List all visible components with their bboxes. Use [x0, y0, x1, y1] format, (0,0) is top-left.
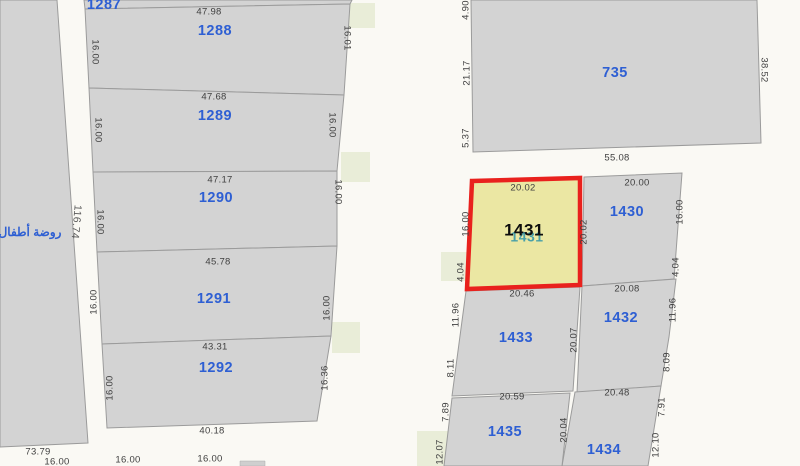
dimension-label: 16.00	[105, 375, 116, 400]
dimension-label: 16.00	[92, 117, 103, 142]
dimension-label: 38.52	[758, 57, 769, 82]
dimension-label: 20.02	[579, 219, 590, 244]
parcel-number-1288: 1288	[198, 23, 232, 39]
parcel-number-1287: 1287	[87, 0, 121, 13]
green-landuse-block	[341, 152, 370, 182]
dimension-label: 16.00	[326, 112, 337, 137]
dimension-label: 11.96	[668, 298, 679, 323]
dimension-label: 20.59	[499, 392, 524, 403]
parcel-number-735: 735	[602, 65, 628, 81]
dimension-label: 20.07	[569, 327, 580, 352]
selected-parcel-label: 1431	[504, 220, 544, 239]
dimension-label: 16.36	[320, 365, 331, 390]
dimension-label: 45.78	[205, 257, 230, 268]
dimension-label: 47.98	[196, 7, 221, 18]
dimension-label: 16.00	[115, 455, 140, 466]
dimension-label: 16.00	[197, 454, 222, 465]
dimension-label: 20.48	[604, 388, 629, 399]
dimension-label: 47.17	[207, 175, 232, 186]
dimension-label: 20.00	[624, 178, 649, 189]
kindergarten-annotation: روضة أطفال	[0, 224, 62, 240]
parcel-number-1434: 1434	[587, 442, 621, 458]
dimension-label: 11.96	[451, 303, 462, 328]
dimension-label: 16.00	[675, 199, 686, 224]
dimension-label: 12.07	[435, 439, 446, 464]
dimension-label: 8.11	[446, 359, 457, 378]
dimension-label: 7.89	[441, 402, 452, 422]
dimension-label: 4.04	[456, 262, 467, 282]
parcel-number-1291: 1291	[197, 291, 231, 307]
dimension-label: 4.90	[461, 0, 472, 20]
dimension-label: 21.17	[462, 60, 473, 85]
dimension-label: 7.91	[657, 397, 668, 417]
dimension-label: 16.00	[89, 39, 100, 64]
parcel-1430[interactable]	[582, 173, 682, 286]
parcel-number-1289: 1289	[198, 108, 232, 124]
parcel-number-1433: 1433	[499, 330, 533, 346]
parcel-number-1430: 1430	[610, 204, 644, 220]
green-landuse-block	[332, 322, 360, 353]
dimension-label: 40.18	[199, 426, 224, 437]
dimension-label: 16.00	[94, 209, 105, 234]
dimension-label: 16.00	[332, 179, 343, 204]
dimension-label: 16.00	[89, 289, 100, 314]
dimension-label: 20.08	[614, 284, 639, 295]
map-canvas[interactable]: 47.9847.6847.1745.7843.3140.1873.7916.00…	[0, 0, 800, 466]
dimension-label: 43.31	[202, 342, 227, 353]
dimension-label: 8.09	[662, 352, 673, 372]
dimension-label: 16.01	[341, 25, 352, 50]
dimension-label: 4.04	[671, 257, 682, 277]
parcel-number-1290: 1290	[199, 190, 233, 206]
dimension-label: 55.08	[604, 153, 629, 164]
dimension-label: 16.00	[322, 295, 333, 320]
dimension-label: 20.02	[510, 183, 535, 194]
parcel-number-1435: 1435	[488, 424, 522, 440]
parcel-number-1432: 1432	[604, 310, 638, 326]
parcel-number-1292: 1292	[199, 360, 233, 376]
dimension-label: 16.00	[44, 457, 69, 466]
dimension-label: 20.04	[559, 417, 570, 442]
parcel-fragment	[240, 461, 265, 466]
parcel-1288[interactable]	[85, 4, 350, 95]
dimension-label: 12.10	[651, 432, 662, 457]
dimension-label: 47.68	[201, 92, 226, 103]
dimension-label: 16.00	[461, 211, 472, 236]
dimension-label: 5.37	[461, 128, 472, 148]
map-viewport[interactable]: 47.9847.6847.1745.7843.3140.1873.7916.00…	[0, 0, 800, 466]
parcel-1432[interactable]	[577, 279, 676, 393]
dimension-label: 20.46	[509, 289, 534, 300]
